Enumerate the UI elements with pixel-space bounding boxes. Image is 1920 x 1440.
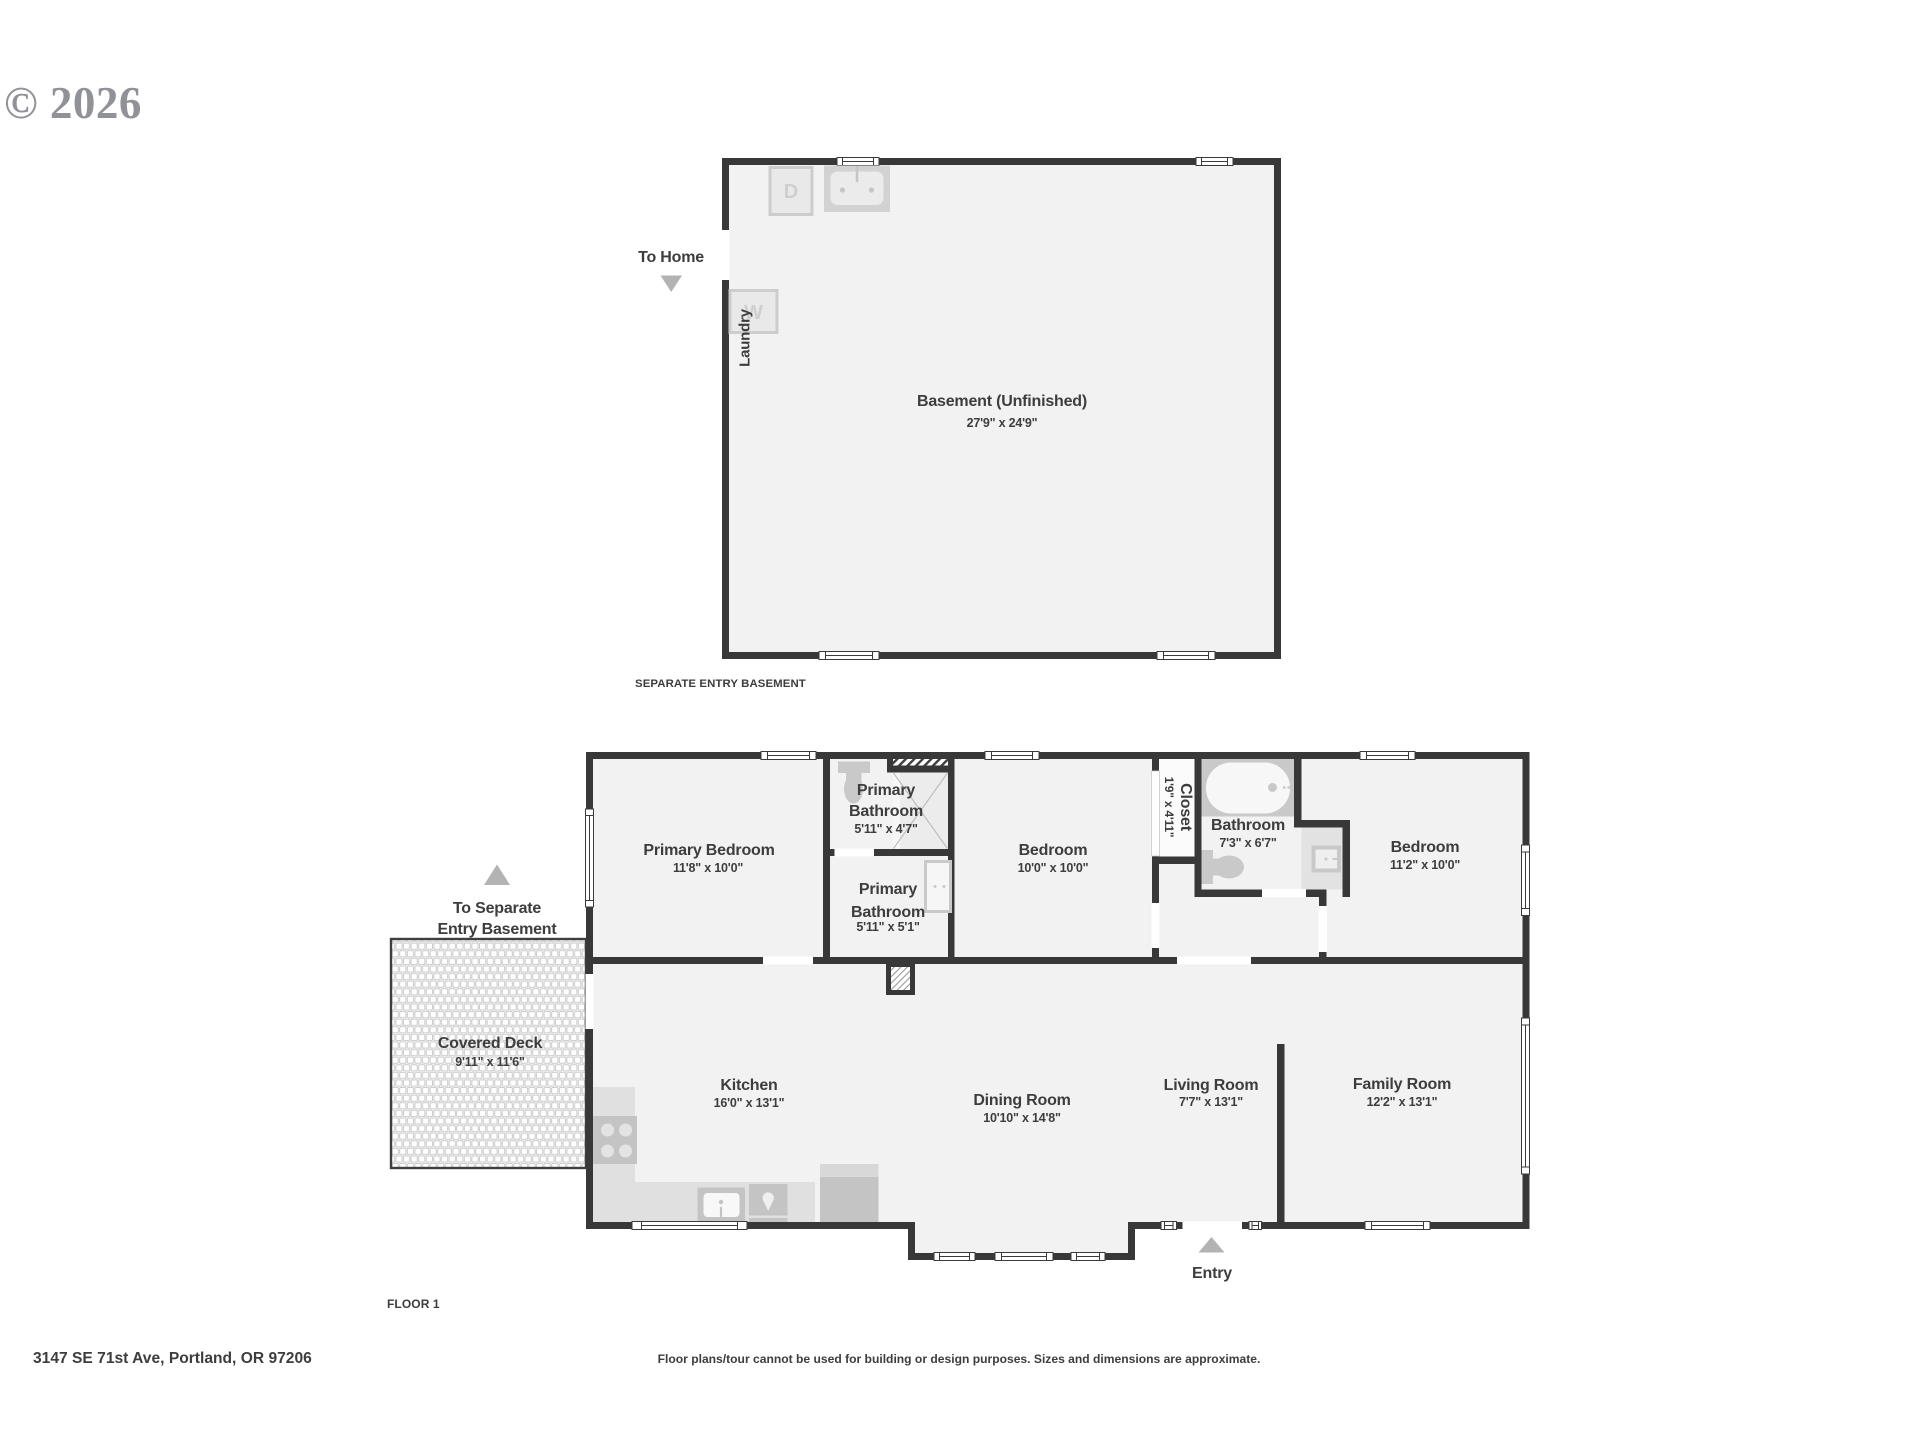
svg-text:Basement (Unfinished): Basement (Unfinished) <box>917 393 1087 410</box>
svg-text:Primary: Primary <box>859 881 917 898</box>
svg-text:5'11" x 4'7": 5'11" x 4'7" <box>854 822 918 836</box>
svg-text:11'2" x 10'0": 11'2" x 10'0" <box>1390 858 1460 872</box>
svg-text:Family Room: Family Room <box>1353 1076 1451 1093</box>
svg-text:Bedroom: Bedroom <box>1019 842 1088 859</box>
svg-text:Covered Deck: Covered Deck <box>438 1035 543 1052</box>
svg-text:16'0" x 13'1": 16'0" x 13'1" <box>714 1096 785 1110</box>
svg-text:Bedroom: Bedroom <box>1391 839 1460 856</box>
svg-text:FLOOR 1: FLOOR 1 <box>387 1297 440 1311</box>
svg-text:5'11" x 5'1": 5'11" x 5'1" <box>856 920 920 934</box>
svg-text:7'7" x 13'1": 7'7" x 13'1" <box>1179 1095 1243 1109</box>
svg-text:Entry Basement: Entry Basement <box>437 921 557 938</box>
svg-text:11'8" x 10'0": 11'8" x 10'0" <box>673 861 743 875</box>
svg-text:D: D <box>784 181 798 203</box>
svg-text:Closet: Closet <box>1177 783 1194 832</box>
svg-text:To Home: To Home <box>638 249 704 266</box>
svg-text:12'2" x 13'1": 12'2" x 13'1" <box>1367 1095 1438 1109</box>
svg-text:27'9" x 24'9": 27'9" x 24'9" <box>967 416 1038 430</box>
svg-text:7'3" x 6'7": 7'3" x 6'7" <box>1219 836 1277 850</box>
svg-text:Bathroom: Bathroom <box>851 904 925 921</box>
svg-text:To Separate: To Separate <box>453 900 542 917</box>
svg-text:1'9" x 4'11": 1'9" x 4'11" <box>1162 777 1176 838</box>
svg-text:10'10" x 14'8": 10'10" x 14'8" <box>983 1111 1061 1125</box>
svg-text:Primary Bedroom: Primary Bedroom <box>643 842 774 859</box>
svg-text:10'0" x 10'0": 10'0" x 10'0" <box>1018 861 1089 875</box>
svg-text:Bathroom: Bathroom <box>849 803 923 820</box>
svg-text:9'11" x 11'6": 9'11" x 11'6" <box>455 1055 525 1069</box>
svg-text:Primary: Primary <box>857 782 915 799</box>
svg-text:Floor plans/tour cannot be use: Floor plans/tour cannot be used for buil… <box>658 1352 1261 1366</box>
svg-text:Dining Room: Dining Room <box>973 1092 1070 1109</box>
svg-text:Entry: Entry <box>1192 1265 1232 1282</box>
svg-text:3147 SE 71st Ave, Portland, OR: 3147 SE 71st Ave, Portland, OR 97206 <box>33 1350 312 1367</box>
svg-text:SEPARATE ENTRY BASEMENT: SEPARATE ENTRY BASEMENT <box>635 678 806 690</box>
svg-text:Bathroom: Bathroom <box>1211 817 1285 834</box>
svg-text:© 2026: © 2026 <box>4 78 142 128</box>
svg-text:Laundry: Laundry <box>737 308 754 367</box>
svg-text:Living Room: Living Room <box>1164 1077 1259 1094</box>
svg-text:Kitchen: Kitchen <box>720 1077 777 1094</box>
